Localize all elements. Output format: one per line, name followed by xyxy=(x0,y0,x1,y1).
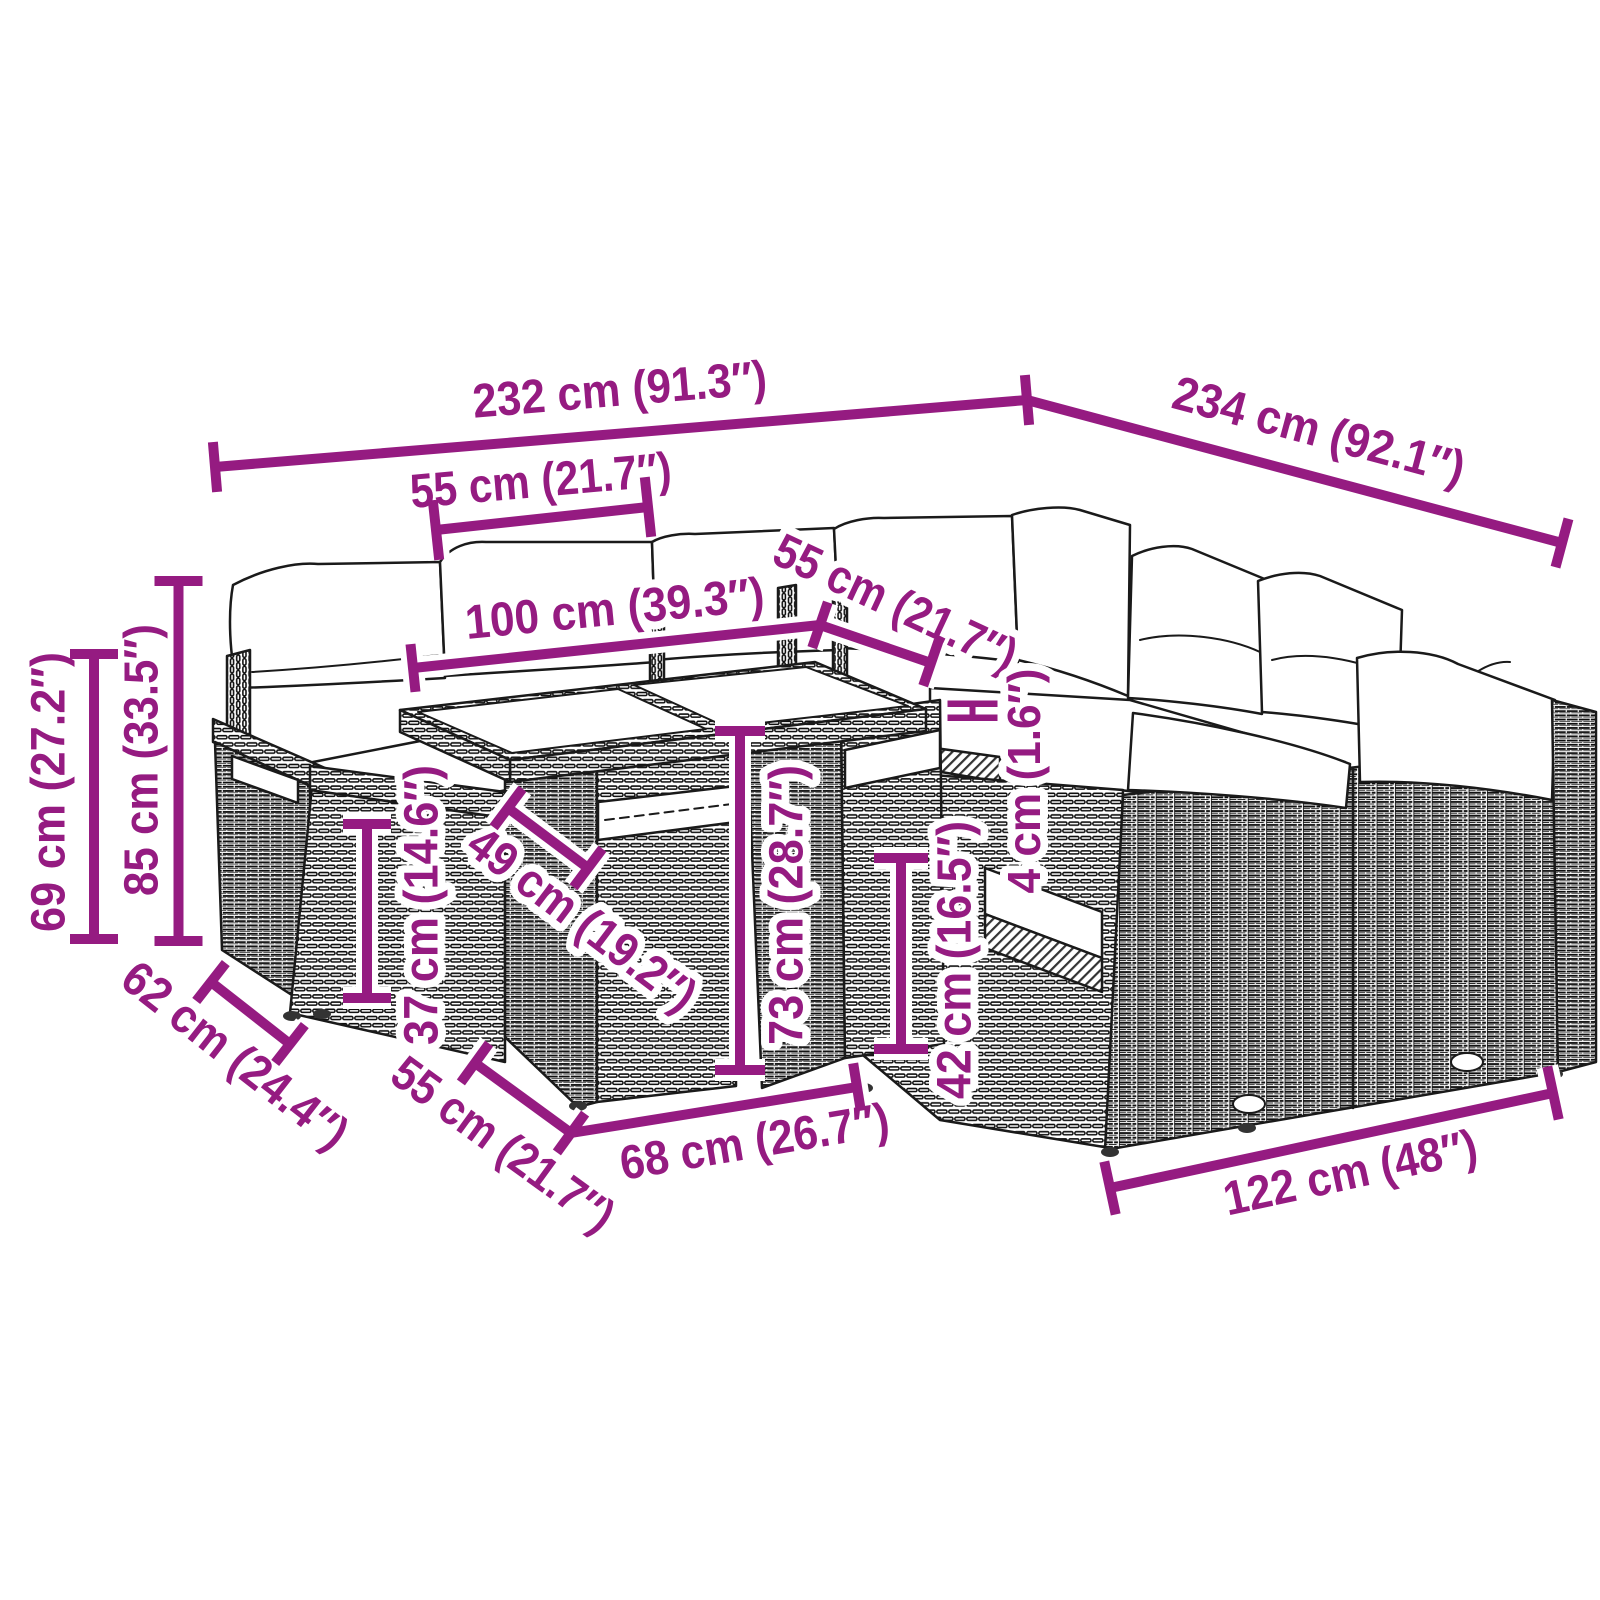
svg-text:73 cm (28.7″): 73 cm (28.7″) xyxy=(761,765,814,1045)
svg-text:85 cm (33.5″): 85 cm (33.5″) xyxy=(116,624,169,896)
svg-text:69 cm (27.2″): 69 cm (27.2″) xyxy=(23,652,76,932)
svg-text:37 cm (14.6″): 37 cm (14.6″) xyxy=(396,765,449,1045)
svg-text:4 cm (1.6″): 4 cm (1.6″) xyxy=(998,669,1050,894)
svg-text:42 cm (16.5″): 42 cm (16.5″) xyxy=(929,821,982,1099)
